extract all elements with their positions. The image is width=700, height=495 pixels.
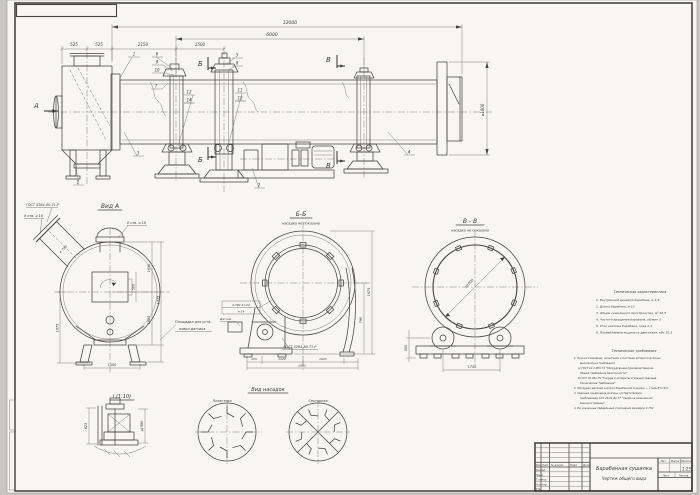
dim-label: 1605	[147, 316, 151, 325]
dim-label: 1750	[468, 365, 477, 369]
tech-req-line: 1. При изготовлении, испытании и поставк…	[574, 356, 661, 360]
nozzle-views-title: Вид насадок	[251, 387, 284, 393]
callout-number: 7	[155, 84, 158, 89]
section-bb-title: Б-Б	[296, 211, 306, 218]
dim-label: 525	[95, 42, 103, 47]
callout-number: 1	[133, 52, 136, 57]
dim-label: 1630	[147, 264, 151, 273]
dim-label: 6000	[266, 32, 278, 38]
tech-char-item: 4. Частота вращения барабана, об/мин 5	[596, 318, 661, 322]
dim-label: ⌀1580	[140, 421, 144, 432]
tech-req-line: Технические требования".	[580, 381, 617, 385]
dim-label: ⌀1800	[480, 103, 485, 116]
tech-char-item: 5. Угол наклона барабана, град 2,4	[596, 324, 652, 328]
callout-number: 14	[186, 98, 192, 103]
engineering-drawing: 12000 6000 525 525 2150 1500	[0, 0, 700, 495]
weld-flag: п-14	[238, 310, 245, 314]
tech-req-line: 3. Сварные соединения должны соответство…	[574, 391, 643, 395]
weld-flag: 2-Т82 Σ=22	[232, 303, 250, 307]
tech-char-item: 3. Объем сушильного пространства, м³ 30,…	[596, 311, 666, 315]
tech-req-line: а) ГОСТ 12.2.003-74 "Оборудование произв…	[578, 366, 654, 370]
callout-number: 6	[156, 52, 159, 57]
callout-number: 10	[154, 68, 160, 73]
tech-req-line: б) ОСТ 26.291-79 "Сосуды и аппараты стал…	[578, 376, 657, 380]
role-nkontr: Н.контр.	[536, 482, 548, 486]
callout-number: 11	[237, 88, 242, 93]
role-razrab: Разраб.	[536, 468, 546, 472]
dim-label: 1775	[157, 296, 161, 305]
tech-req-line: машиностроении".	[580, 401, 606, 405]
tech-req-line: 2. Материал деталей корпуса барабанной с…	[574, 386, 669, 390]
col-dokum: № докум.	[550, 464, 564, 467]
sheets-label: Листов	[678, 473, 689, 477]
section-b-mark: Б	[198, 60, 203, 68]
platform-note: новки датчика	[179, 327, 205, 331]
holes-note: 8 отв. ⌀ 18	[24, 214, 44, 218]
role-utv: Утв.	[536, 487, 542, 491]
dim-label: 2150	[138, 42, 149, 47]
col-data: Дата	[582, 463, 590, 467]
tech-req-line: 4. Не указанные предельные отклонения ра…	[574, 406, 654, 410]
drawing-sheet: 12000 6000 525 525 2150 1500	[0, 0, 700, 495]
lit-label: Лит.	[660, 459, 667, 463]
holes-note: 8 отв. ⌀ 18	[127, 221, 147, 225]
section-vv-title: В - В	[463, 218, 477, 225]
weld-note: ГОСТ 5264-80-Т1-Р	[26, 203, 60, 207]
dim-label: 1220	[278, 357, 286, 361]
callout-number: 5	[236, 53, 239, 58]
dim-label: 105	[251, 357, 257, 361]
tech-req-line: требованиям ОСТ 26-01-82-77 "Сварка в хи…	[580, 396, 653, 400]
tech-req-line: выполняться требования:	[580, 361, 616, 365]
section-vv-subtitle: насадка не показана	[451, 229, 489, 233]
role-prov: Пров.	[536, 473, 544, 477]
section-v-mark: В	[326, 56, 331, 64]
dim-label: 1500	[195, 42, 206, 47]
dim-label: 500	[404, 345, 408, 351]
callout-number: 13	[237, 96, 243, 101]
doc-name: Барабанная сушилка	[596, 466, 652, 472]
dim-label: 1675	[56, 324, 60, 333]
tech-req-title: Технические требования	[612, 349, 657, 353]
tech-char-item: 2. Длина барабана, м 12	[596, 305, 635, 309]
dim-label: 12000	[283, 20, 297, 26]
weld-note: ГОСТ 5264-80-Т1-Р	[284, 345, 318, 349]
tech-char-item: 6. Потребляемая мощность двигателя, кВт …	[596, 331, 672, 335]
callout-number: 2	[258, 183, 261, 188]
callout-number: 12	[186, 90, 192, 95]
dim-label: 790	[359, 317, 363, 323]
scale-value: 1:25	[682, 467, 691, 472]
sheet-frame	[7, 0, 697, 493]
section-bb-subtitle: насадка не показана	[282, 222, 320, 226]
dim-label: 500	[132, 284, 136, 290]
dim-label: 625	[84, 423, 88, 429]
callout-number: 4	[408, 150, 411, 155]
dim-label: 1625	[319, 357, 327, 361]
callout-number: 9	[156, 60, 159, 65]
callout-number: 8	[236, 61, 239, 66]
callout-number: 1	[77, 180, 80, 185]
dim-label: 1675	[367, 288, 371, 297]
col-list: Лист	[541, 463, 549, 467]
section-b-mark: Б	[198, 156, 203, 164]
platform-note: Площадка для уста-	[175, 320, 212, 324]
scale-label: Масштаб	[680, 459, 693, 463]
view-a-title: Вид А	[101, 203, 119, 210]
doc-type: Чертеж общего вида	[602, 476, 647, 481]
dim-label: 1683	[298, 364, 306, 368]
view-arrow-label: А	[33, 102, 39, 110]
nozzle-left-label: Лопастная	[211, 399, 231, 403]
tech-req-line: Общие требования безопасности";	[580, 371, 628, 375]
section-v-mark: В	[326, 162, 331, 170]
col-podp: Подп.	[570, 463, 578, 467]
tech-char-item: 1. Внутренний диаметр барабана, м 1,8	[596, 298, 659, 302]
mass-label: Масса	[671, 459, 680, 463]
sheet-label: Лист	[662, 473, 670, 477]
callout-number: 3	[137, 151, 140, 156]
tech-char-title: Техническая характеристика	[614, 290, 667, 294]
dim-label: 525	[70, 42, 78, 47]
dim-label: 1500	[108, 363, 117, 367]
sensor-label: Датчик	[219, 317, 232, 321]
role-tkontr: Т.контр.	[536, 478, 547, 482]
detail-i-title: I (1:10)	[113, 394, 131, 400]
